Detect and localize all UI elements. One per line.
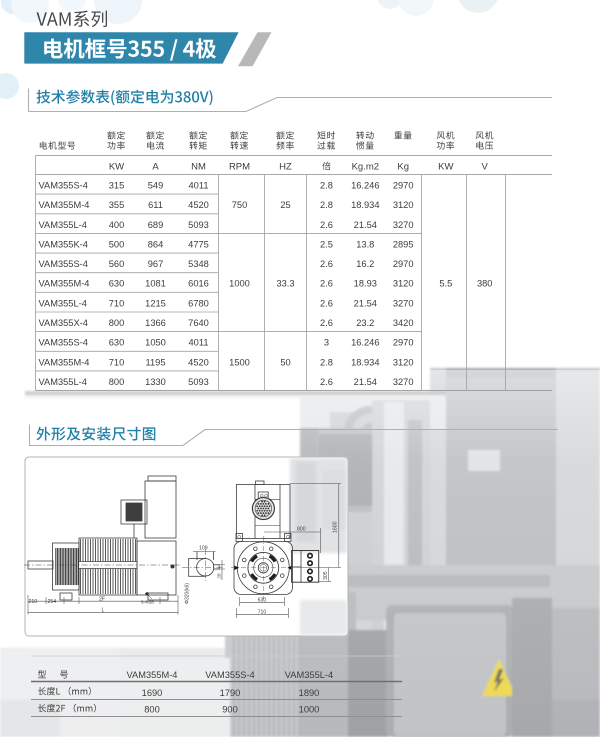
svg-text:V: V: [482, 161, 489, 172]
svg-text:2.6: 2.6: [320, 298, 333, 308]
svg-text:3120: 3120: [393, 357, 414, 367]
svg-text:380: 380: [477, 279, 493, 289]
svg-text:L: L: [102, 608, 105, 614]
svg-text:NM: NM: [191, 161, 206, 172]
svg-text:4775: 4775: [188, 239, 209, 249]
svg-text:355: 355: [109, 200, 125, 210]
svg-text:Kg.m2: Kg.m2: [352, 161, 379, 172]
svg-text:800: 800: [144, 705, 160, 715]
svg-text:16.246: 16.246: [351, 181, 379, 191]
svg-text:4011: 4011: [189, 338, 209, 348]
svg-text:18.934: 18.934: [351, 357, 379, 367]
svg-text:Φ320(k6): Φ320(k6): [185, 583, 191, 604]
svg-text:800: 800: [109, 377, 125, 387]
svg-text:630: 630: [258, 598, 267, 604]
svg-text:1195: 1195: [146, 357, 166, 367]
svg-text:5.5: 5.5: [439, 279, 452, 289]
svg-text:5093: 5093: [188, 377, 209, 387]
svg-text:710: 710: [109, 298, 125, 308]
svg-text:689: 689: [148, 220, 164, 230]
svg-text:3120: 3120: [393, 279, 414, 289]
svg-text:500: 500: [109, 239, 125, 249]
svg-text:2.6: 2.6: [320, 259, 333, 269]
svg-text:630: 630: [109, 279, 125, 289]
svg-text:50: 50: [280, 357, 290, 367]
svg-text:4011: 4011: [189, 181, 209, 191]
svg-text:254: 254: [48, 599, 57, 605]
svg-text:2.8: 2.8: [320, 357, 333, 367]
svg-text:21.54: 21.54: [354, 377, 377, 387]
svg-text:5348: 5348: [188, 259, 209, 269]
svg-text:2970: 2970: [393, 181, 414, 191]
svg-text:VAM355L-4: VAM355L-4: [39, 220, 87, 230]
svg-text:400: 400: [109, 220, 125, 230]
svg-text:800: 800: [297, 527, 306, 533]
svg-text:VAM355L-4: VAM355L-4: [285, 670, 333, 680]
svg-text:21.54: 21.54: [354, 220, 377, 230]
svg-text:18.93: 18.93: [354, 279, 377, 289]
svg-text:6-Φ28: 6-Φ28: [141, 599, 154, 604]
svg-text:630: 630: [109, 338, 125, 348]
svg-text:7640: 7640: [188, 318, 209, 328]
svg-text:549: 549: [148, 181, 164, 191]
svg-text:1500: 1500: [229, 357, 250, 367]
svg-text:VAM355S-4: VAM355S-4: [39, 181, 88, 191]
svg-text:1366: 1366: [145, 318, 166, 328]
svg-text:5093: 5093: [188, 220, 209, 230]
svg-text:13.8: 13.8: [356, 239, 374, 249]
svg-text:3420: 3420: [393, 318, 414, 328]
svg-text:1050: 1050: [145, 338, 166, 348]
svg-text:6016: 6016: [188, 279, 209, 289]
svg-text:25: 25: [280, 200, 290, 210]
svg-text:710: 710: [109, 357, 125, 367]
svg-text:VAM355M-4: VAM355M-4: [39, 279, 90, 289]
svg-text:VAM355M-4: VAM355M-4: [127, 670, 178, 680]
svg-text:21.54: 21.54: [354, 298, 377, 308]
svg-text:4520: 4520: [188, 357, 209, 367]
svg-text:710: 710: [258, 610, 267, 616]
svg-text:HZ: HZ: [279, 161, 292, 172]
svg-text:611: 611: [148, 200, 163, 210]
svg-text:560: 560: [109, 259, 125, 269]
svg-text:2.8: 2.8: [320, 200, 333, 210]
svg-text:2.6: 2.6: [320, 318, 333, 328]
svg-text:16.2: 16.2: [356, 259, 374, 269]
svg-text:KW: KW: [438, 161, 453, 172]
svg-text:864: 864: [148, 239, 164, 249]
svg-text:2.6: 2.6: [320, 377, 333, 387]
svg-text:VAM355M-4: VAM355M-4: [39, 357, 90, 367]
svg-text:2.6: 2.6: [320, 220, 333, 230]
svg-text:VAM355S-4: VAM355S-4: [205, 670, 254, 680]
svg-text:109: 109: [199, 546, 208, 552]
svg-text:1690: 1690: [142, 688, 163, 698]
svg-text:VAM355L-4: VAM355L-4: [39, 377, 87, 387]
svg-text:23.2: 23.2: [356, 318, 374, 328]
svg-text:967: 967: [148, 259, 164, 269]
svg-text:305: 305: [323, 571, 329, 580]
svg-text:2.5: 2.5: [320, 239, 333, 249]
svg-text:1000: 1000: [229, 279, 250, 289]
svg-text:VAM355K-4: VAM355K-4: [39, 239, 88, 249]
svg-text:3: 3: [324, 338, 329, 348]
svg-text:VAM355L-4: VAM355L-4: [39, 298, 87, 308]
svg-text:800: 800: [109, 318, 125, 328]
svg-text:Kg: Kg: [397, 161, 409, 172]
svg-text:3120: 3120: [393, 200, 414, 210]
svg-text:2F: 2F: [99, 596, 105, 602]
svg-text:28: 28: [217, 573, 222, 579]
svg-text:210: 210: [29, 599, 38, 605]
svg-text:2.8: 2.8: [320, 181, 333, 191]
svg-text:315: 315: [109, 181, 125, 191]
svg-text:16.246: 16.246: [351, 338, 379, 348]
svg-text:2895: 2895: [393, 239, 414, 249]
svg-text:A: A: [152, 161, 159, 172]
svg-text:VAM355M-4: VAM355M-4: [39, 200, 90, 210]
svg-text:RPM: RPM: [229, 161, 250, 172]
svg-text:VAM355X-4: VAM355X-4: [39, 318, 88, 328]
svg-text:2970: 2970: [393, 259, 414, 269]
svg-text:2.6: 2.6: [320, 279, 333, 289]
svg-text:1890: 1890: [299, 688, 320, 698]
svg-text:1000: 1000: [299, 705, 320, 715]
svg-text:4520: 4520: [188, 200, 209, 210]
svg-text:3270: 3270: [393, 220, 414, 230]
svg-text:1330: 1330: [145, 377, 166, 387]
svg-text:VAM355S-4: VAM355S-4: [39, 259, 88, 269]
svg-text:33.3: 33.3: [276, 279, 294, 289]
svg-text:2970: 2970: [393, 338, 414, 348]
svg-text:3270: 3270: [393, 377, 414, 387]
svg-text:1215: 1215: [145, 298, 166, 308]
svg-text:18.934: 18.934: [351, 200, 379, 210]
svg-text:750: 750: [232, 200, 248, 210]
svg-text:3270: 3270: [393, 298, 414, 308]
svg-text:6780: 6780: [188, 298, 209, 308]
svg-text:1081: 1081: [145, 279, 166, 289]
svg-text:900: 900: [222, 705, 238, 715]
svg-text:1600: 1600: [333, 521, 339, 533]
svg-text:VAM355S-4: VAM355S-4: [39, 338, 88, 348]
svg-text:1790: 1790: [220, 688, 241, 698]
svg-text:KW: KW: [109, 161, 124, 172]
